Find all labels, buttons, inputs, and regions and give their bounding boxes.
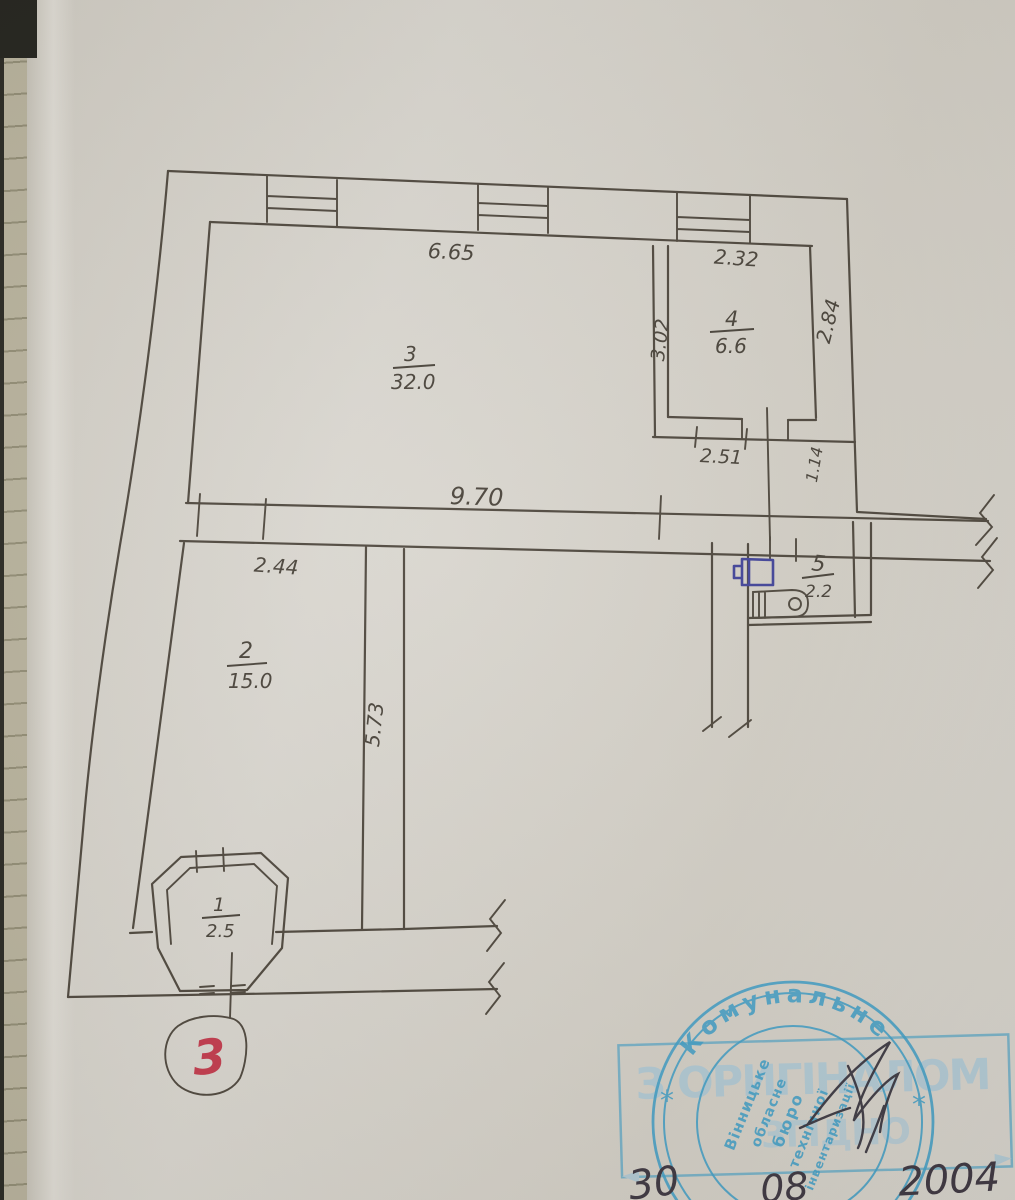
room4-number: 4 xyxy=(725,307,738,331)
round-stamp-arc-text: Комунальне xyxy=(675,980,898,1060)
door-extension-line xyxy=(767,408,770,540)
room4-door-jambs xyxy=(742,419,788,440)
outer-walls xyxy=(68,171,986,997)
dimension-labels: 6.65 2.32 3.02 2.84 2.51 1.14 9.70 2.44 … xyxy=(253,239,845,748)
date-year: 2004 xyxy=(897,1154,1001,1200)
round-stamp-star-left: * xyxy=(660,1084,674,1117)
room2-bottom-left xyxy=(130,932,152,933)
dim-room4-left: 3.02 xyxy=(647,318,674,363)
room5-bottom xyxy=(748,615,871,625)
inner-walls xyxy=(130,222,990,933)
fixtures xyxy=(734,559,808,618)
corridor-bottom-line xyxy=(180,541,990,561)
corridor-ticks xyxy=(197,494,661,539)
room5-walls xyxy=(712,522,871,727)
room2-bottom-inner xyxy=(276,929,404,932)
round-stamp-star-right: * xyxy=(912,1088,926,1121)
room5-number: 5 xyxy=(810,551,827,577)
floor-plan-drawing: 1 2.5 2 15.0 3 32.0 4 6.6 5 2.2 6.65 2.3… xyxy=(0,0,1015,1200)
dim-room2-wall: 5.73 xyxy=(360,701,389,748)
room2-left-inner xyxy=(133,543,184,928)
dim-room4-top: 2.32 xyxy=(713,245,759,272)
room4-area: 6.6 xyxy=(715,334,747,358)
bay-window-ticks xyxy=(196,848,224,872)
room1-area: 2.5 xyxy=(206,921,235,942)
wall-top-inner xyxy=(210,222,812,246)
dim-room4-bottom: 2.51 xyxy=(699,445,742,469)
wall-right-outer xyxy=(847,199,986,519)
window-1-icon xyxy=(267,176,337,226)
room2-area: 15.0 xyxy=(228,669,273,693)
room3-area: 32.0 xyxy=(391,370,436,394)
room-labels: 1 2.5 2 15.0 3 32.0 4 6.6 5 2.2 xyxy=(202,307,834,942)
floor-mark: 3 xyxy=(165,953,246,1095)
room3-number: 3 xyxy=(404,342,417,366)
sink-icon xyxy=(734,559,773,585)
room3-left-inner xyxy=(188,222,210,503)
window-2-icon xyxy=(478,184,548,233)
break-mark-wall-end xyxy=(703,717,751,737)
dim-corridor-offset: 2.44 xyxy=(253,553,299,580)
date-month: 08 xyxy=(758,1164,810,1200)
room5-right-a xyxy=(853,522,855,617)
dim-top-wall: 6.65 xyxy=(427,239,475,265)
floor-mark-number: 3 xyxy=(190,1028,228,1087)
room1-number: 1 xyxy=(213,894,225,916)
break-mark-right-bottom xyxy=(978,538,997,588)
photographed-floor-plan-sheet: 1 2.5 2 15.0 3 32.0 4 6.6 5 2.2 6.65 2.3… xyxy=(0,0,1015,1200)
room5-area: 2.2 xyxy=(805,582,832,602)
dim-room4-right: 2.84 xyxy=(811,297,845,346)
toilet-icon xyxy=(753,590,808,618)
wall-left-outer xyxy=(68,171,168,997)
wall-bottom-outer xyxy=(68,989,497,997)
room4-bottom-b xyxy=(653,437,855,442)
dim-corridor: 9.70 xyxy=(449,482,503,512)
toilet-flush-icon xyxy=(789,598,801,610)
room5-door-ticks xyxy=(770,537,796,561)
room2-number: 2 xyxy=(239,639,253,664)
floor-mark-leader xyxy=(230,953,232,1018)
date-day: 30 xyxy=(626,1158,682,1200)
window-3-icon xyxy=(677,192,750,243)
wall-top-outer xyxy=(168,171,847,199)
wall-stub-right xyxy=(404,926,497,929)
dim-door-width: 1.14 xyxy=(802,445,827,483)
